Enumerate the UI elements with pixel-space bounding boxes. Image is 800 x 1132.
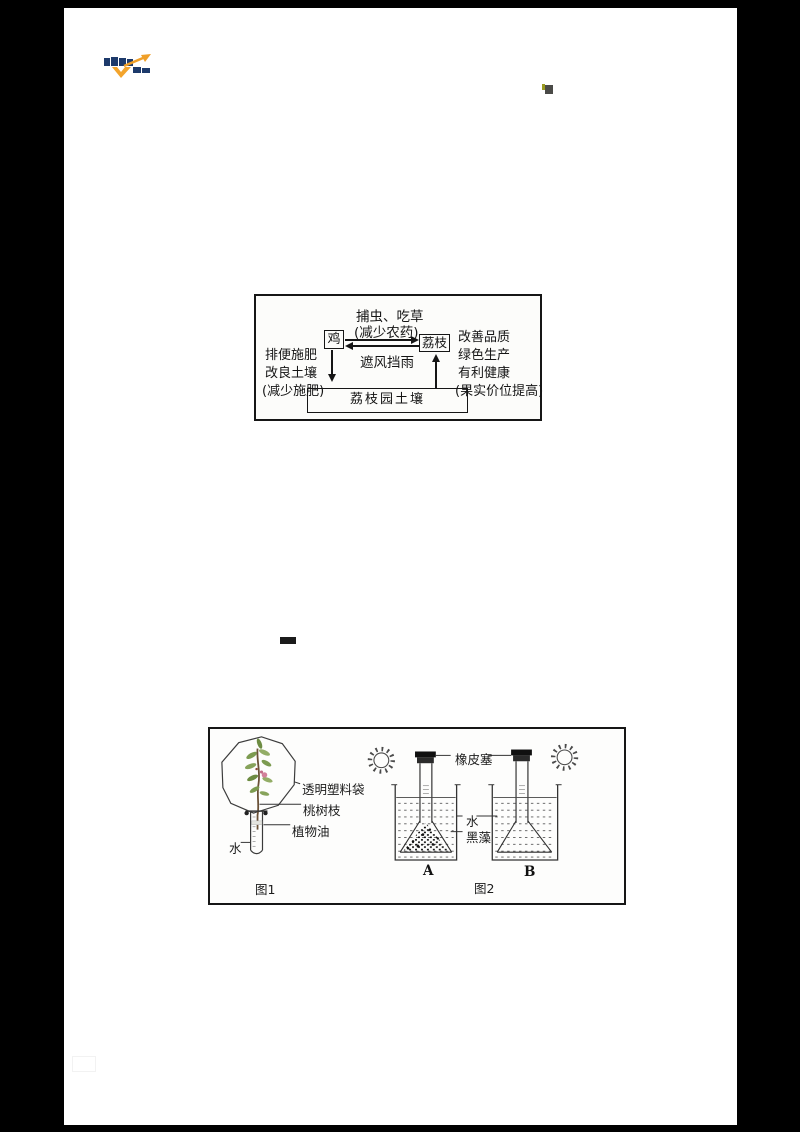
arrowhead-up-icon xyxy=(432,354,440,362)
logo-graphic xyxy=(104,54,152,80)
tube-a-ticks xyxy=(423,786,429,794)
arrow-line-up xyxy=(435,362,437,389)
eco-right-line-2: 绿色生产 xyxy=(458,344,510,363)
label-water-fig1: 水 xyxy=(229,838,242,857)
label-beaker-b: B xyxy=(524,864,535,880)
label-rubber-stopper: 橡皮塞 xyxy=(455,749,493,768)
label-beaker-a: A xyxy=(423,863,433,879)
test-tube-1 xyxy=(246,811,268,854)
eco-right-line-4: (果实价位提高) xyxy=(455,380,543,399)
arrowhead-right-icon xyxy=(411,336,419,344)
label-algae: 黑藻 xyxy=(466,827,491,846)
tube-b-ticks xyxy=(519,786,525,794)
ecosystem-diagram: 捕虫、吃草 (减少农药) 鸡 荔枝 遮风挡雨 排便施肥 改良土壤 (减少施肥) … xyxy=(254,294,542,421)
tube-b xyxy=(516,761,528,823)
oil-layer xyxy=(252,821,262,825)
flower-dot xyxy=(255,768,257,770)
paper-page: 捕虫、吃草 (减少农药) 鸡 荔枝 遮风挡雨 排便施肥 改良土壤 (减少施肥) … xyxy=(64,8,737,1125)
sun-left-icon xyxy=(370,749,393,771)
funnel-b xyxy=(497,821,551,852)
beaker-b xyxy=(492,785,557,860)
eco-top-label-2: (减少农药) xyxy=(354,321,419,341)
label-peach-twig: 桃树枝 xyxy=(303,800,341,819)
arrow-line-down xyxy=(331,350,333,375)
eco-left-line-2: 改良土壤 xyxy=(265,362,317,381)
stopper-b-band xyxy=(513,755,530,761)
tube-a xyxy=(420,763,432,823)
tube-rim-blob-left xyxy=(244,811,248,815)
arrow-line-left xyxy=(353,345,419,347)
arrowhead-down-icon xyxy=(328,374,336,382)
sun-right-icon xyxy=(553,746,576,768)
blank-stamp-box xyxy=(72,1056,96,1072)
eco-mid-label: 遮风挡雨 xyxy=(360,351,414,371)
eco-soil-box: 荔枝园土壤 xyxy=(307,388,468,413)
eco-left-line-1: 排便施肥 xyxy=(265,344,317,363)
xuekewang-logo xyxy=(104,54,152,80)
corner-square-icon xyxy=(545,85,553,94)
eco-node-chicken: 鸡 xyxy=(324,330,344,349)
experiment-figure: 透明塑料袋 桃树枝 植物油 水 图1 橡皮塞 水 黑藻 A B 图2 xyxy=(208,727,626,905)
arrowhead-left-icon xyxy=(345,342,353,350)
stopper-a-band xyxy=(417,757,434,763)
label-plant-oil: 植物油 xyxy=(292,821,330,840)
tube-rim-blob-right xyxy=(263,811,267,815)
stopper-a xyxy=(415,751,436,757)
water-texture-b xyxy=(495,803,554,857)
stopper-b xyxy=(511,750,532,756)
label-plastic-bag: 透明塑料袋 xyxy=(302,779,365,798)
arrow-line-right xyxy=(345,339,412,341)
caption-fig2: 图2 xyxy=(474,878,494,897)
experiment-drawing xyxy=(210,729,624,903)
flower-bud xyxy=(260,770,263,773)
eco-node-lychee: 荔枝 xyxy=(419,334,450,352)
redaction-dash xyxy=(280,637,296,644)
eco-right-line-1: 改善品质 xyxy=(458,326,510,345)
caption-fig1: 图1 xyxy=(255,879,275,898)
eco-right-line-3: 有利健康 xyxy=(458,362,510,381)
